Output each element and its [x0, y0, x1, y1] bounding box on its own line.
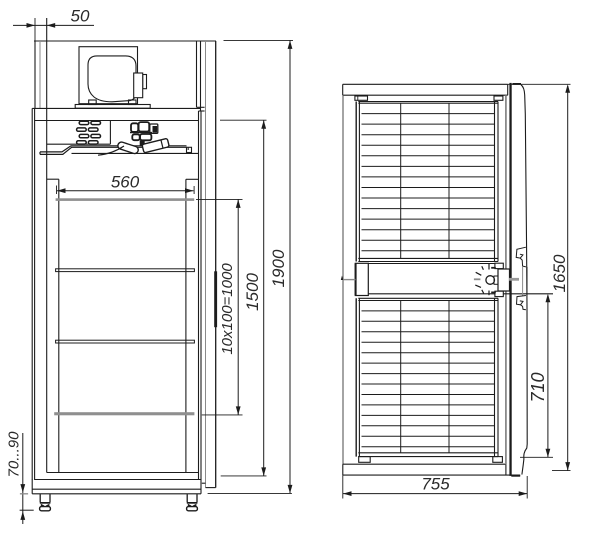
svg-text:560: 560 — [111, 173, 140, 192]
svg-text:755: 755 — [421, 475, 450, 494]
svg-text:70...90: 70...90 — [6, 431, 23, 478]
svg-text:1900: 1900 — [269, 249, 288, 287]
svg-text:1650: 1650 — [550, 254, 569, 292]
svg-text:1500: 1500 — [243, 273, 262, 311]
svg-text:710: 710 — [528, 372, 548, 402]
svg-text:50: 50 — [71, 7, 90, 26]
svg-text:10x100=1000: 10x100=1000 — [219, 263, 236, 355]
